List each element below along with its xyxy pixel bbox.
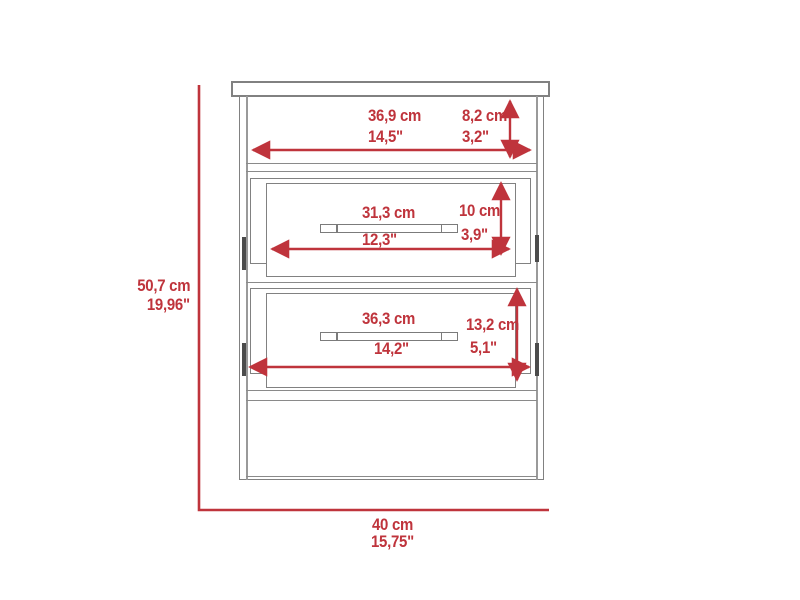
overall-height-label-in: 19,96" [147, 296, 190, 314]
lower-drawer-height-label-cm: 13,2 cm [466, 316, 519, 334]
upper-drawer-width-label-in: 12,3" [362, 231, 397, 249]
shelf-width-label-in: 14,5" [368, 128, 403, 146]
upper-drawer-width-label-cm: 31,3 cm [362, 204, 415, 222]
upper-drawer-height-label-cm: 10 cm [459, 202, 500, 220]
lower-drawer-height-label-in: 5,1" [470, 339, 497, 357]
shelf-height-label-in: 3,2" [462, 128, 489, 146]
shelf-height-label-cm: 8,2 cm [462, 107, 507, 125]
overall-width-label-in: 15,75" [371, 533, 414, 551]
shelf-width-label-cm: 36,9 cm [368, 107, 421, 125]
overall-dimension-line [199, 85, 549, 510]
overall-height-label-cm: 50,7 cm [137, 277, 190, 295]
lower-drawer-width-label-in: 14,2" [374, 340, 409, 358]
dimension-overlay [0, 0, 800, 600]
upper-drawer-height-label-in: 3,9" [461, 226, 488, 244]
lower-drawer-width-label-cm: 36,3 cm [362, 310, 415, 328]
dimension-diagram: 36,9 cm 14,5" 8,2 cm 3,2" 31,3 cm 12,3" … [0, 0, 800, 600]
